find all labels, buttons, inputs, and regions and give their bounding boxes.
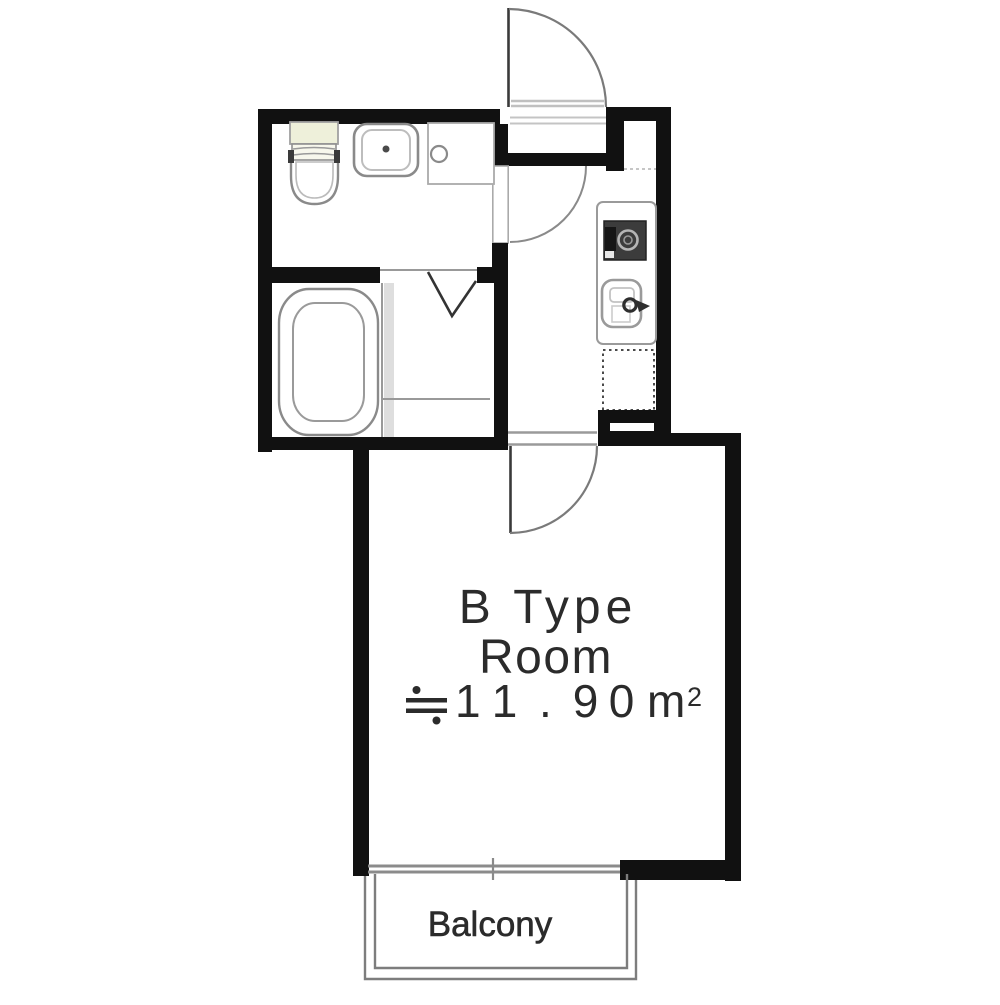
svg-text:Balcony: Balcony xyxy=(428,905,553,944)
svg-text:2: 2 xyxy=(687,682,702,712)
svg-text:B Type: B Type xyxy=(459,581,638,634)
